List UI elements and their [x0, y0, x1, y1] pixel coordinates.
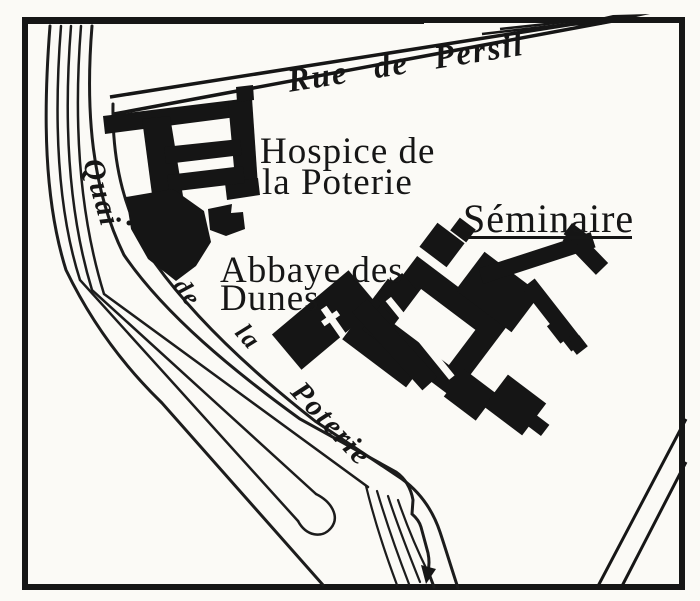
seminaire-label: Séminaire — [463, 199, 634, 239]
abbaye-label-line2: Dunes — [220, 280, 320, 317]
hospice-label-line2: la Poterie — [262, 164, 413, 201]
rue-word: de — [371, 45, 411, 86]
historic-map-canvas: RuedePersil Hospice de la Poterie Sémina… — [0, 0, 700, 601]
seminaire-underline — [466, 236, 632, 239]
